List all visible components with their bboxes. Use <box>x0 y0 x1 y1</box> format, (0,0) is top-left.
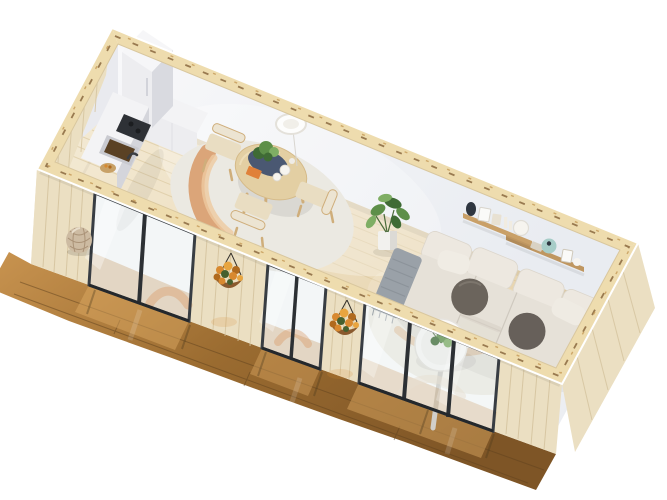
fruit-2 <box>108 165 111 168</box>
leaf-cluster <box>264 153 273 162</box>
tiny-house-cutaway-render <box>0 0 667 500</box>
teal-vase-mouth <box>547 241 551 245</box>
plant-pot-shade <box>390 231 397 250</box>
flower <box>353 322 359 328</box>
basket-deck-reflection <box>211 317 237 327</box>
candle <box>504 217 507 228</box>
flower <box>237 275 243 281</box>
fruit <box>104 164 107 167</box>
dark-vase <box>466 202 476 216</box>
cooktop-burner <box>129 122 134 127</box>
white-plate-2 <box>273 173 281 181</box>
small-cup <box>289 158 295 164</box>
flower-foliage <box>343 326 349 332</box>
picture-frame-small <box>561 249 573 263</box>
teal-vase <box>542 239 557 254</box>
flower <box>335 325 342 332</box>
render-canvas <box>0 0 667 500</box>
fruit-bowl <box>100 163 116 173</box>
round-plate-decor <box>514 221 529 236</box>
lamp-shade-inner <box>283 119 299 129</box>
flower-foliage <box>337 317 345 325</box>
cooktop-burner-2 <box>136 129 141 134</box>
flower-foliage <box>221 270 229 278</box>
picture-frame-beige <box>491 213 501 225</box>
flower <box>229 272 237 280</box>
flower <box>340 309 349 318</box>
flower <box>219 278 226 285</box>
flower <box>345 319 353 327</box>
basket-deck-reflection <box>327 369 353 379</box>
candle-2 <box>509 221 512 230</box>
picture-frame-white <box>478 207 491 222</box>
mini-vase <box>573 258 581 266</box>
white-plate <box>280 165 290 175</box>
flower-foliage <box>227 279 233 285</box>
flower <box>224 262 233 271</box>
